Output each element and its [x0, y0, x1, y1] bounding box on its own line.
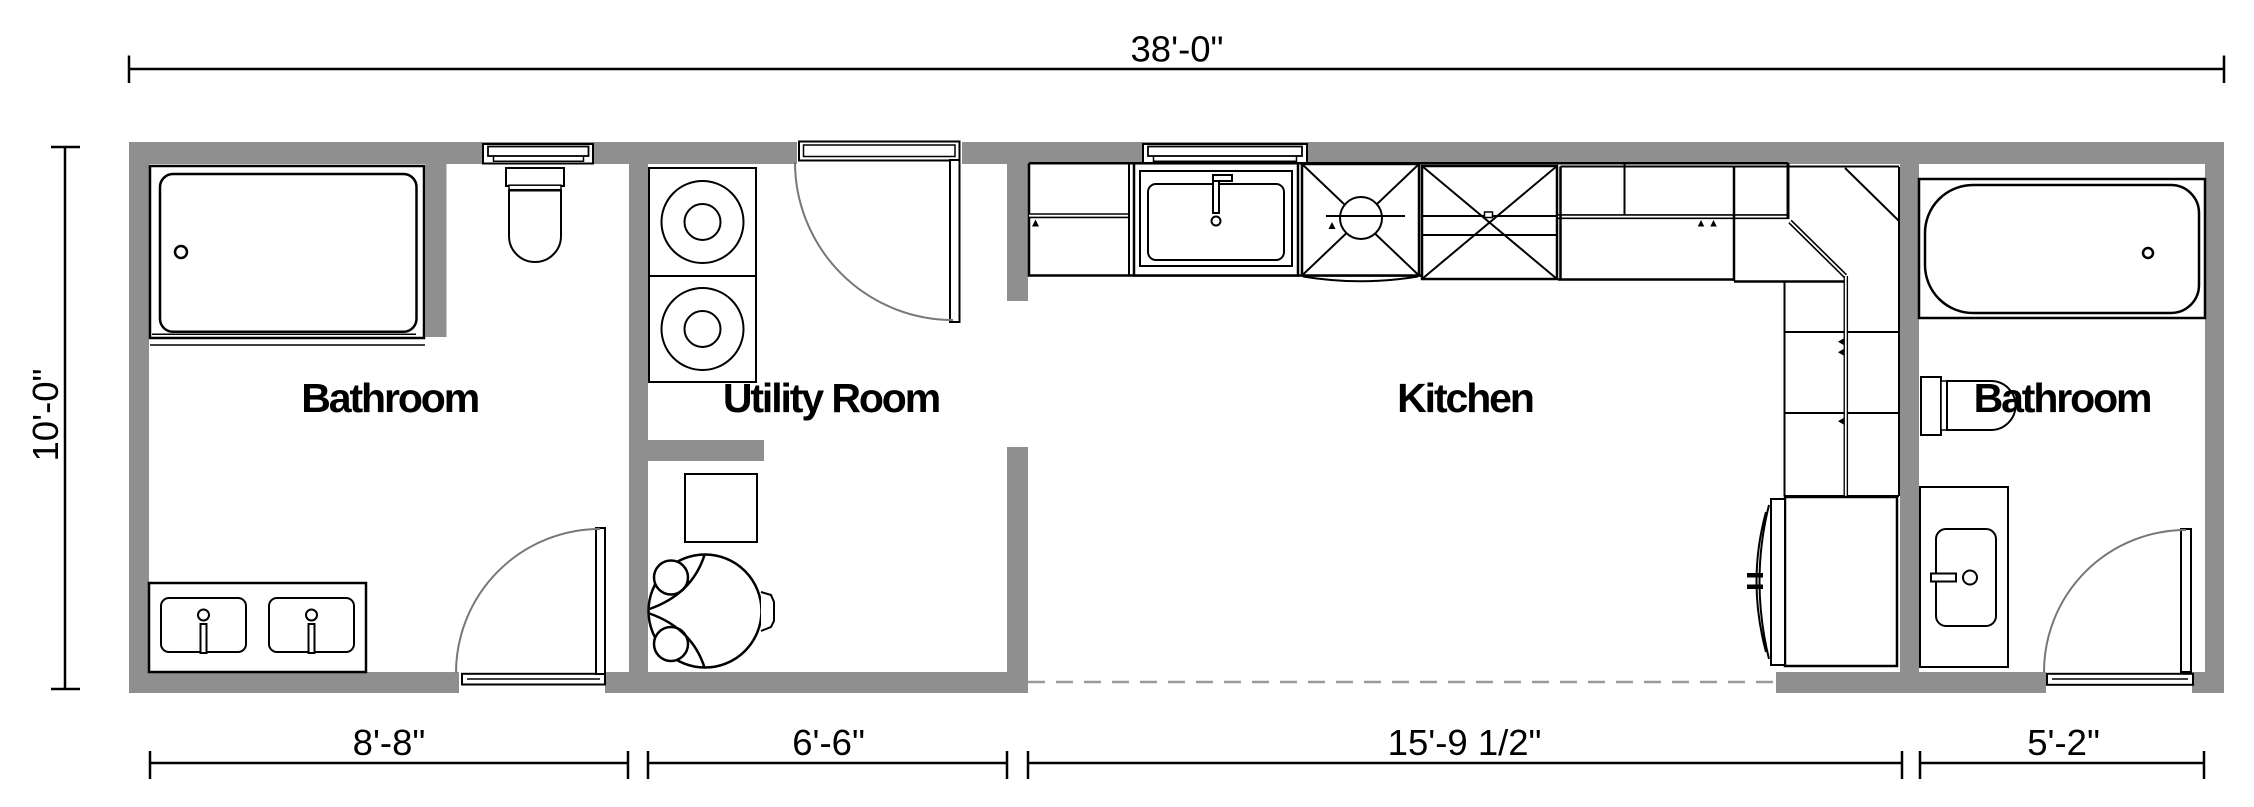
- svg-text:38'-0": 38'-0": [1131, 29, 1224, 70]
- svg-text:6'-6": 6'-6": [792, 722, 865, 763]
- svg-text:15'-9 1/2": 15'-9 1/2": [1388, 722, 1542, 763]
- svg-text:Kitchen: Kitchen: [1397, 375, 1533, 421]
- svg-text:Utility Room: Utility Room: [723, 375, 939, 421]
- svg-text:8'-8": 8'-8": [353, 722, 426, 763]
- svg-text:5'-2": 5'-2": [2027, 722, 2100, 763]
- svg-text:Bathroom: Bathroom: [1974, 375, 2151, 421]
- svg-text:10'-0": 10'-0": [25, 369, 66, 462]
- svg-text:Bathroom: Bathroom: [301, 375, 478, 421]
